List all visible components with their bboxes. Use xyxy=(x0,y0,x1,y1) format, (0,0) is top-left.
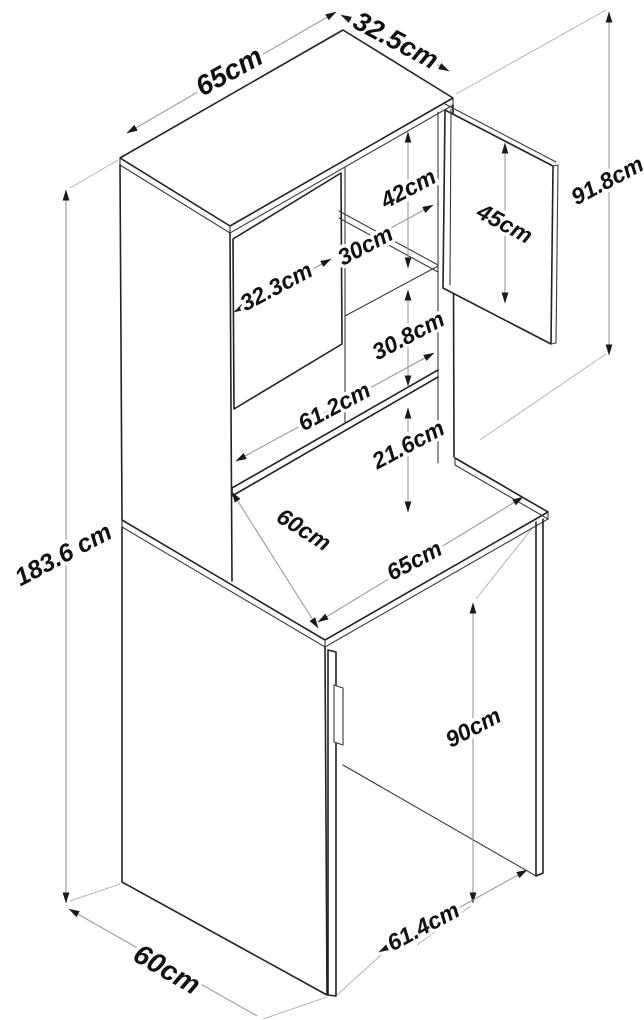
bay-inner-floor-line xyxy=(343,765,536,876)
isometric-drawing-canvas: 65cm 32.5cm 91.8cm 45cm 42cm 30cm 32.3cm… xyxy=(0,0,644,1020)
base-right-side-panel xyxy=(536,519,543,876)
dim-label-base-depth: 60cm xyxy=(128,938,206,1001)
dimension-labels: 65cm 32.5cm 91.8cm 45cm 42cm 30cm 32.3cm… xyxy=(10,6,644,1001)
hutch-back-left-edge xyxy=(120,165,122,520)
hutch-top-thickness-edge xyxy=(120,105,453,233)
compartment-shelf-front-edge xyxy=(345,266,438,316)
total-height-extension-bottom xyxy=(70,884,120,901)
dim-label-counter-width: 65cm xyxy=(382,535,446,586)
hutch-height-extension-bottom xyxy=(480,354,606,440)
dim-label-counter-depth: 60cm xyxy=(272,503,336,556)
base-depth-extension-front xyxy=(263,997,327,1019)
dim-label-hutch-height: 91.8cm xyxy=(567,151,644,211)
dim-label-left-door-width: 32.3cm xyxy=(236,257,317,317)
dim-label-top-depth: 32.5cm xyxy=(348,6,443,75)
dim-label-total-height: 183.6 cm xyxy=(10,518,116,592)
dim-label-upper-opening-width: 30cm xyxy=(333,220,397,271)
hutch-front-left-edge xyxy=(230,233,232,581)
base-door-handle xyxy=(334,685,343,745)
dim-label-top-width: 65cm xyxy=(190,40,268,102)
base-opening-extension-left xyxy=(337,955,381,995)
hutch-height-extension-top xyxy=(456,10,606,94)
cabinet-dimension-diagram: 65cm 32.5cm 91.8cm 45cm 42cm 30cm 32.3cm… xyxy=(0,0,644,1020)
countertop-top-edges xyxy=(122,458,548,640)
countertop-thickness-edges xyxy=(122,465,548,647)
hutch-top-corner-edges xyxy=(120,98,453,233)
dim-label-base-opening-width: 61.4cm xyxy=(383,897,464,957)
total-height-extension-top xyxy=(70,160,118,188)
dim-line-counter-depth xyxy=(232,492,318,628)
base-left-side-panel xyxy=(122,527,327,995)
cabinet-outline xyxy=(120,30,558,996)
dim-label-shelf-width: 61.2cm xyxy=(294,377,375,437)
countertop-corner-edges xyxy=(122,458,548,647)
